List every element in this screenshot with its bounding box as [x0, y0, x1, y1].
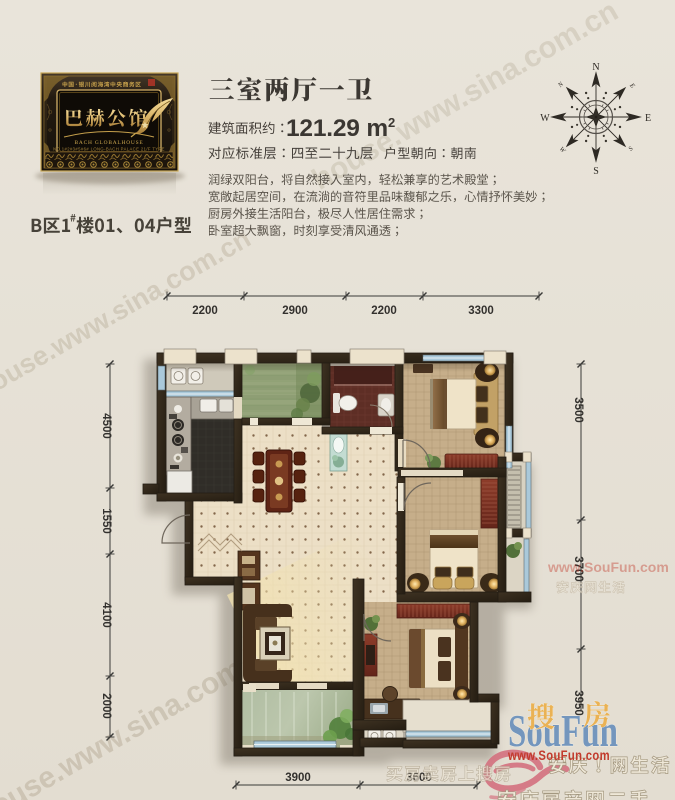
svg-text:2900: 2900: [282, 305, 308, 317]
svg-text:3900: 3900: [285, 772, 311, 784]
svg-text:S: S: [593, 166, 599, 177]
svg-text:BACH GLOBALHOUSE: BACH GLOBALHOUSE: [75, 140, 144, 146]
svg-text:4100: 4100: [100, 602, 112, 628]
svg-text:121.29 m2: 121.29 m2: [286, 115, 395, 142]
svg-text:W: W: [540, 113, 550, 124]
svg-text:2200: 2200: [192, 305, 218, 317]
svg-text:4500: 4500: [100, 413, 112, 439]
svg-text:3300: 3300: [468, 305, 494, 317]
svg-text:E: E: [645, 113, 651, 124]
svg-text:N: N: [592, 62, 599, 73]
svg-text:2000: 2000: [100, 693, 112, 719]
svg-text:3500: 3500: [572, 397, 584, 423]
svg-text:www.SouFun.com: www.SouFun.com: [507, 748, 610, 763]
svg-text:www.SouFun.com: www.SouFun.com: [547, 559, 669, 575]
svg-text:2200: 2200: [371, 305, 397, 317]
svg-text:1550: 1550: [100, 508, 112, 534]
svg-text:NO.1#2#3#5#6# LONG-BACH PALACE: NO.1#2#3#5#6# LONG-BACH PALACE 21/F TYPE: [53, 147, 165, 152]
